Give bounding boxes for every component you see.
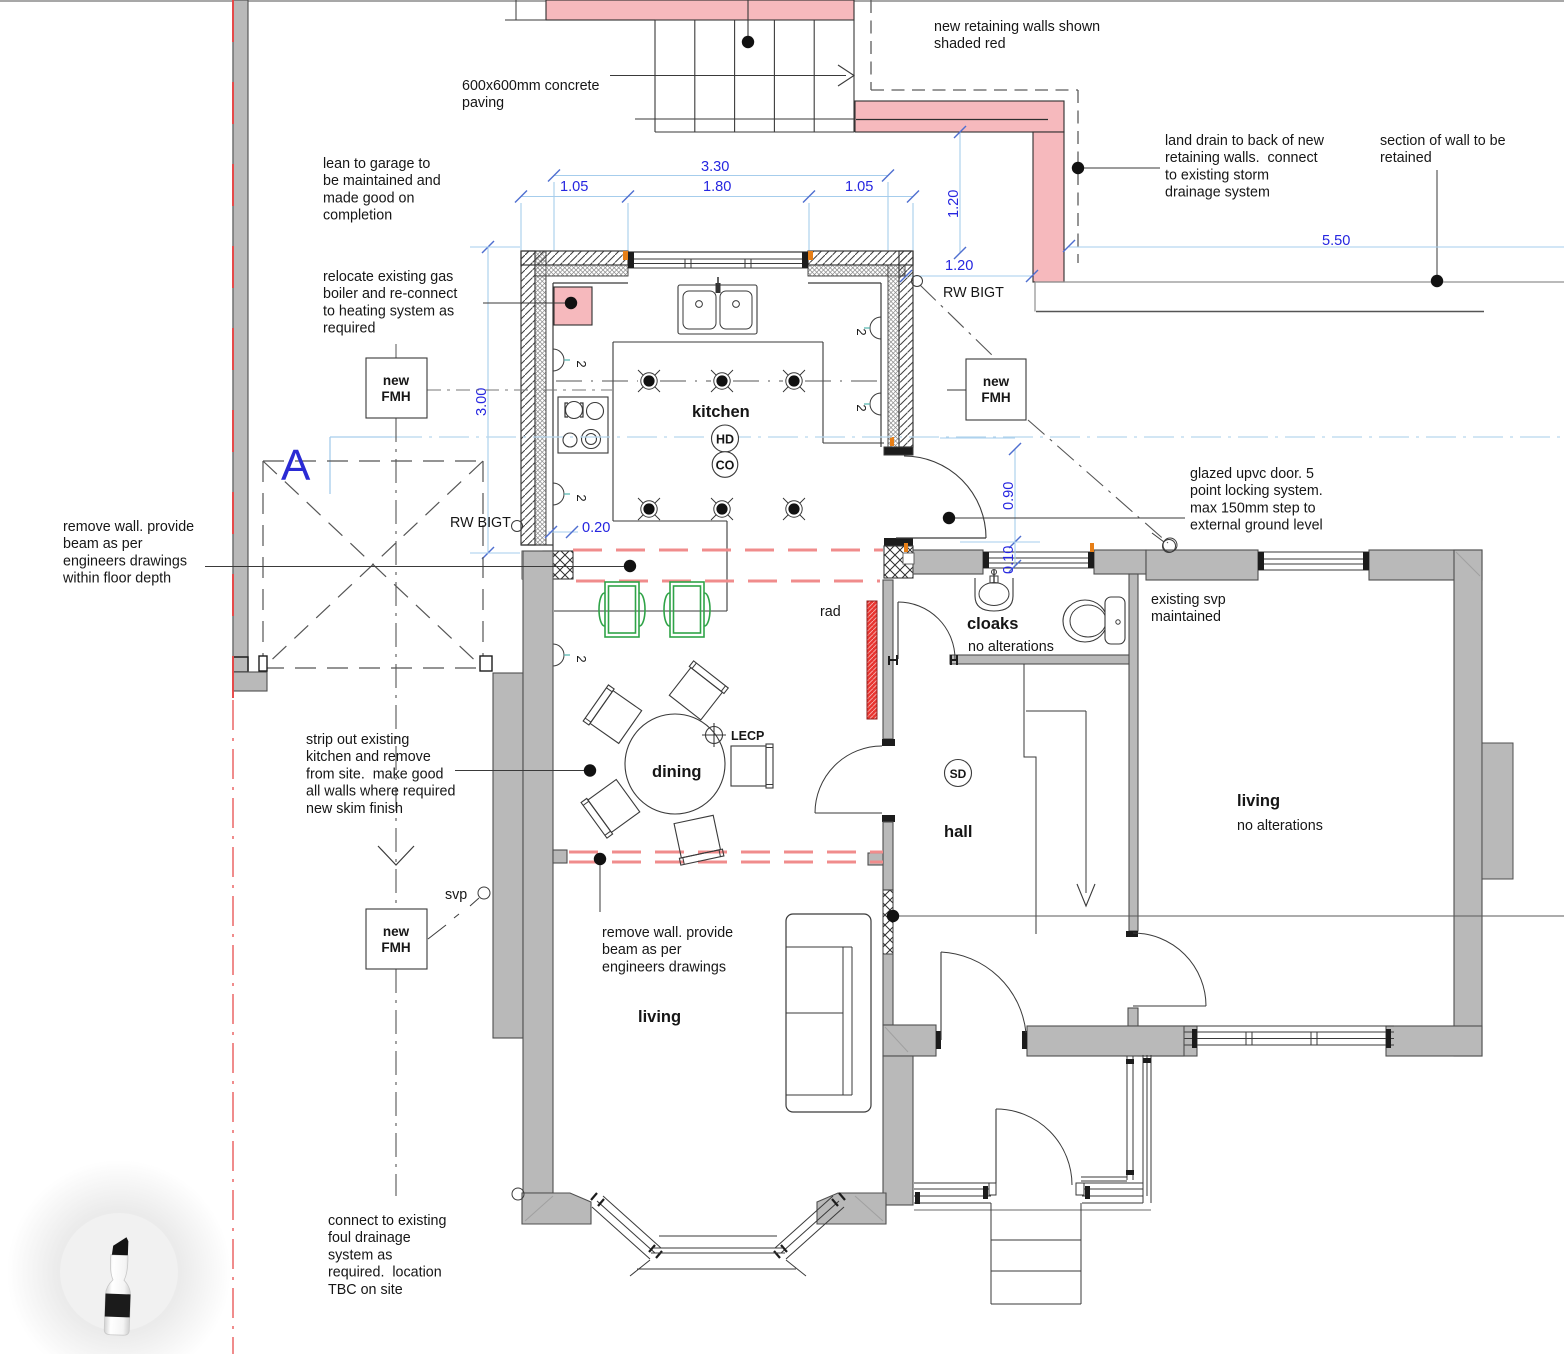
svg-text:0.10: 0.10: [1001, 546, 1017, 574]
svg-text:1.80: 1.80: [703, 179, 731, 195]
svg-text:1.20: 1.20: [946, 190, 962, 218]
svg-text:strip out existing: strip out existing: [306, 732, 409, 748]
svg-text:required. location: required. location: [328, 1265, 442, 1281]
svg-text:new: new: [383, 924, 410, 939]
svg-text:made good on: made good on: [323, 190, 414, 206]
svg-text:to heating system as: to heating system as: [323, 303, 454, 319]
svg-text:A: A: [281, 441, 311, 490]
svg-text:retained: retained: [1380, 150, 1432, 166]
svg-text:point locking system.: point locking system.: [1190, 483, 1323, 499]
svg-text:LECP: LECP: [731, 729, 764, 743]
svg-text:cloaks: cloaks: [967, 615, 1018, 633]
svg-text:living: living: [638, 1008, 681, 1026]
svg-text:1.05: 1.05: [560, 179, 588, 195]
svg-text:relocate existing gas: relocate existing gas: [323, 269, 453, 285]
svg-text:drainage system: drainage system: [1165, 185, 1270, 201]
svg-text:2: 2: [574, 655, 589, 662]
svg-text:hall: hall: [944, 823, 972, 841]
svg-text:land drain to back of new: land drain to back of new: [1165, 133, 1325, 149]
svg-text:2: 2: [574, 360, 589, 367]
svg-text:FMH: FMH: [381, 389, 410, 404]
svg-text:lean to garage to: lean to garage to: [323, 156, 430, 172]
svg-text:new skim finish: new skim finish: [306, 801, 403, 817]
svg-text:beam as per: beam as per: [602, 942, 682, 958]
svg-text:RW BIGT: RW BIGT: [450, 515, 511, 531]
svg-text:living: living: [1237, 792, 1280, 810]
svg-text:1.05: 1.05: [845, 179, 873, 195]
svg-text:2: 2: [854, 404, 869, 411]
svg-text:0.20: 0.20: [582, 520, 610, 536]
svg-text:3.30: 3.30: [701, 159, 729, 175]
svg-text:HD: HD: [716, 433, 734, 447]
svg-text:remove wall. provide: remove wall. provide: [63, 519, 194, 535]
svg-text:svp: svp: [445, 887, 467, 903]
svg-text:new retaining walls shown: new retaining walls shown: [934, 19, 1100, 35]
svg-text:beam as per: beam as per: [63, 536, 143, 552]
svg-text:CO: CO: [716, 459, 735, 473]
svg-text:paving: paving: [462, 95, 504, 111]
svg-text:TBC on site: TBC on site: [328, 1282, 403, 1298]
svg-text:engineers drawings: engineers drawings: [63, 553, 187, 569]
svg-text:5.50: 5.50: [1322, 233, 1350, 249]
svg-text:connect to existing: connect to existing: [328, 1213, 446, 1229]
svg-text:no alterations: no alterations: [968, 639, 1054, 655]
svg-text:3.00: 3.00: [474, 388, 490, 416]
svg-text:maintained: maintained: [1151, 609, 1221, 625]
svg-text:glazed upvc door. 5: glazed upvc door. 5: [1190, 466, 1314, 482]
svg-text:external ground level: external ground level: [1190, 518, 1323, 534]
svg-text:system as: system as: [328, 1247, 392, 1263]
svg-text:existing svp: existing svp: [1151, 592, 1226, 608]
svg-text:0.90: 0.90: [1001, 482, 1017, 510]
svg-text:shaded red: shaded red: [934, 36, 1006, 52]
svg-text:RW BIGT: RW BIGT: [943, 285, 1004, 301]
svg-text:new: new: [983, 374, 1010, 389]
svg-text:to existing storm: to existing storm: [1165, 167, 1269, 183]
svg-text:engineers drawings: engineers drawings: [602, 959, 726, 975]
svg-text:boiler and re-connect: boiler and re-connect: [323, 286, 457, 302]
svg-text:kitchen and remove: kitchen and remove: [306, 749, 431, 765]
svg-text:foul drainage: foul drainage: [328, 1230, 411, 1246]
svg-text:2: 2: [854, 328, 869, 335]
svg-text:FMH: FMH: [981, 390, 1010, 405]
svg-text:kitchen: kitchen: [692, 403, 750, 421]
svg-text:within floor depth: within floor depth: [62, 571, 171, 587]
svg-text:section of wall to be: section of wall to be: [1380, 133, 1506, 149]
svg-text:SD: SD: [950, 767, 967, 781]
svg-text:dining: dining: [652, 763, 701, 781]
svg-text:2: 2: [574, 494, 589, 501]
svg-text:1.20: 1.20: [945, 258, 973, 274]
svg-text:all walls where required: all walls where required: [306, 784, 455, 800]
svg-text:no alterations: no alterations: [1237, 818, 1323, 834]
svg-text:required: required: [323, 321, 376, 337]
svg-text:be maintained and: be maintained and: [323, 173, 441, 189]
svg-text:new: new: [383, 373, 410, 388]
svg-text:rad: rad: [820, 604, 841, 620]
svg-text:completion: completion: [323, 208, 392, 224]
svg-text:retaining walls. connect: retaining walls. connect: [1165, 150, 1318, 166]
svg-text:from site. make good: from site. make good: [306, 766, 444, 782]
svg-text:600x600mm concrete: 600x600mm concrete: [462, 78, 600, 94]
svg-text:remove wall. provide: remove wall. provide: [602, 925, 733, 941]
svg-text:FMH: FMH: [381, 940, 410, 955]
svg-text:max 150mm step to: max 150mm step to: [1190, 500, 1316, 516]
